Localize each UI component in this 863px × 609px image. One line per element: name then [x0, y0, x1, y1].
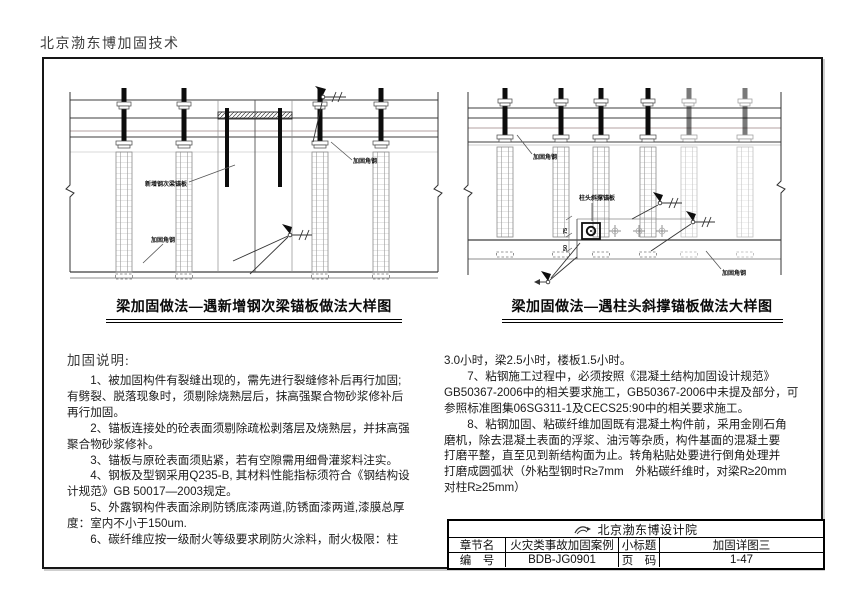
- note-line: 1、被加固构件有裂缝出现的，需先进行裂缝修补后再行加固;: [67, 373, 449, 389]
- notes-right-column: 3.0小时，梁2.5小时，楼板1.5小时。 7、粘钢施工过程中，必须按照《混凝土…: [444, 353, 836, 496]
- company-name: 北京渤东博设计院: [597, 521, 697, 538]
- note-line: GB50367-2006中的相关要求施工，GB50367-2006中未提及部分，…: [444, 385, 836, 401]
- tb-value-number: BDB-JG0901: [506, 553, 619, 567]
- weld-symbol-mid: [233, 224, 312, 274]
- tb-label-chapter: 章节名: [449, 538, 506, 553]
- notes-title: 加固说明:: [67, 349, 449, 369]
- dim-75: 75: [563, 228, 569, 234]
- figure-right-caption: 梁加固做法—遇柱头斜撑锚板做法大样图: [455, 296, 829, 323]
- bolt-crosses: [609, 225, 668, 237]
- tb-value-subtitle: 加固详图三: [660, 538, 823, 553]
- note-line: 打磨平整，直至见到新结构面为止。转角粘贴处要进行倒角处理并: [444, 448, 836, 464]
- break-symbol-left: [66, 92, 74, 272]
- label-angle-bottom: 加固角钢: [721, 269, 746, 277]
- note-line: 3、锚板与原砼表面须贴紧，若有空隙需用细骨灌浆料注实。: [67, 453, 449, 469]
- break-symbol-right: [777, 92, 785, 275]
- label-new-beam-plate: 新增钢次梁锚板: [145, 180, 188, 188]
- title-block-company-row: 北京渤东博设计院: [449, 521, 823, 538]
- weld-symbol-1: [632, 192, 682, 219]
- weld-symbol-bottom: [534, 243, 580, 285]
- break-symbol-left: [464, 92, 472, 275]
- note-line: 参照标准图集06SG311-1及CECS25:90中的相关要求施工。: [444, 401, 836, 417]
- note-line: 8、粘钢加固、粘碳纤维加固既有混凝土构件前，采用金刚石角: [444, 417, 836, 433]
- note-line: 计规范》GB 50017—2003规定。: [67, 484, 449, 500]
- figure-right: 75 50: [455, 85, 829, 323]
- figure-right-caption-text: 梁加固做法—遇柱头斜撑锚板做法大样图: [502, 296, 783, 323]
- company-logo-icon: [574, 524, 592, 535]
- note-line: 4、钢板及型钢采用Q235-B, 其材料性能指标须符合《钢结构设: [67, 468, 449, 484]
- note-line: 3.0小时，梁2.5小时，楼板1.5小时。: [444, 353, 836, 369]
- note-line: 6、碳纤维应按一级耐火等级要求刷防火涂料，耐火极限：柱: [67, 532, 449, 548]
- note-line: 度：室内不小于150um.: [67, 516, 449, 532]
- anchor-assemblies: [497, 88, 754, 257]
- title-block: 北京渤东博设计院 章节名 火灾类事故加固案例 小标题 加固详图三 编 号 BDB…: [447, 519, 825, 570]
- beam-lines: [468, 108, 781, 259]
- tb-value-page: 1-47: [660, 553, 823, 567]
- tb-label-number: 编 号: [449, 553, 506, 567]
- figure-left-caption: 梁加固做法—遇新增钢次梁锚板做法大样图: [65, 296, 443, 323]
- note-line: 5、外露钢构件表面涂刷防锈底漆两道,防锈面漆两道,漆膜总厚: [67, 500, 449, 516]
- label-angle-top: 加固角钢: [532, 153, 557, 161]
- sheet-border: 新增钢次梁锚板 加固角钢 加固角钢 梁加固做法—遇新增钢次梁锚板做法大样图: [42, 57, 823, 569]
- doc-header: 北京渤东博加固技术: [40, 33, 180, 53]
- dim-50: 50: [563, 245, 569, 251]
- break-symbol-right: [434, 92, 442, 272]
- note-line: 对柱R≥25mm）: [444, 480, 836, 496]
- note-line: 有劈裂、脱落现象时，须剔除烧熟层后，抹高强聚合物砂浆修补后: [67, 389, 449, 405]
- note-line: 打磨成圆弧状（外粘型钢时R≥7mm 外粘碳纤维时，对梁R≥20mm: [444, 464, 836, 480]
- figure-left-drawing: 新增钢次梁锚板 加固角钢 加固角钢: [65, 85, 443, 287]
- label-bracket-plate: 柱头斜撑锚板: [579, 194, 616, 202]
- note-line: 再行加固。: [67, 405, 449, 421]
- note-line: 聚合物砂浆修补。: [67, 437, 449, 453]
- tb-value-chapter: 火灾类事故加固案例: [506, 538, 619, 553]
- tb-label-page: 页 码: [619, 553, 660, 567]
- label-angle-bottom: 加固角钢: [150, 236, 175, 244]
- note-line: 7、粘钢施工过程中，必须按照《混凝土结构加固设计规范》: [444, 369, 836, 385]
- label-angle-top: 加固角钢: [352, 157, 377, 165]
- figure-left: 新增钢次梁锚板 加固角钢 加固角钢 梁加固做法—遇新增钢次梁锚板做法大样图: [65, 85, 443, 323]
- figure-right-drawing: 75 50: [455, 85, 829, 287]
- note-line: 2、锚板连接处的砼表面须剔除疏松剥落层及烧熟层，并抹高强: [67, 421, 449, 437]
- title-block-grid: 章节名 火灾类事故加固案例 小标题 加固详图三 编 号 BDB-JG0901 页…: [449, 538, 823, 567]
- note-line: 磨机，除去混凝土表面的浮浆、油污等杂质，构件基面的混凝土要: [444, 433, 836, 449]
- tb-label-subtitle: 小标题: [619, 538, 660, 553]
- bracket-plate-assembly: 75 50: [563, 203, 695, 259]
- notes-left-column: 加固说明: 1、被加固构件有裂缝出现的，需先进行裂缝修补后再行加固; 有劈裂、脱…: [67, 349, 449, 548]
- figure-left-caption-text: 梁加固做法—遇新增钢次梁锚板做法大样图: [106, 296, 402, 323]
